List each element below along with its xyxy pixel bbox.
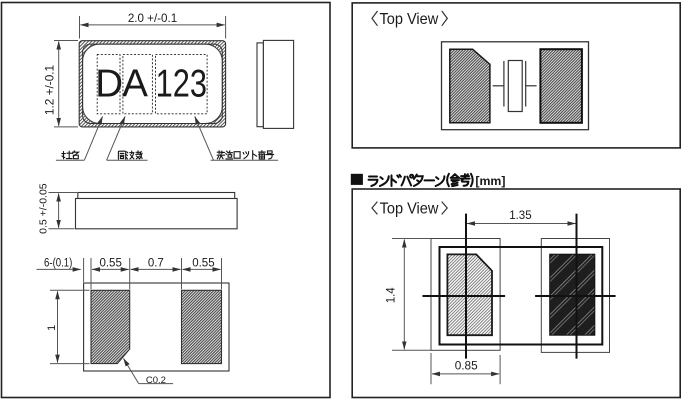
svg-text:0.55: 0.55 [99, 257, 121, 269]
svg-text:Top View: Top View [380, 200, 440, 218]
svg-text:D: D [95, 63, 123, 106]
svg-text:1: 1 [46, 325, 58, 331]
svg-text:C0.2: C0.2 [146, 375, 166, 386]
svg-text:0.85: 0.85 [455, 359, 478, 373]
svg-text:A: A [122, 63, 148, 106]
svg-text:Top View: Top View [380, 11, 440, 29]
svg-text:123: 123 [156, 62, 207, 105]
svg-text:0.7: 0.7 [148, 257, 164, 269]
svg-text:1.35: 1.35 [509, 210, 531, 222]
svg-text:[mm]: [mm] [475, 174, 505, 188]
svg-text:1.4: 1.4 [386, 287, 398, 304]
svg-text:1.2 +/-0.1: 1.2 +/-0.1 [43, 65, 57, 115]
svg-text:0.5 +/-0.05: 0.5 +/-0.05 [38, 183, 50, 234]
svg-text:0.55: 0.55 [192, 257, 214, 269]
svg-text:6-(0.1): 6-(0.1) [44, 257, 72, 270]
svg-text:2.0 +/-0.1: 2.0 +/-0.1 [128, 12, 177, 25]
